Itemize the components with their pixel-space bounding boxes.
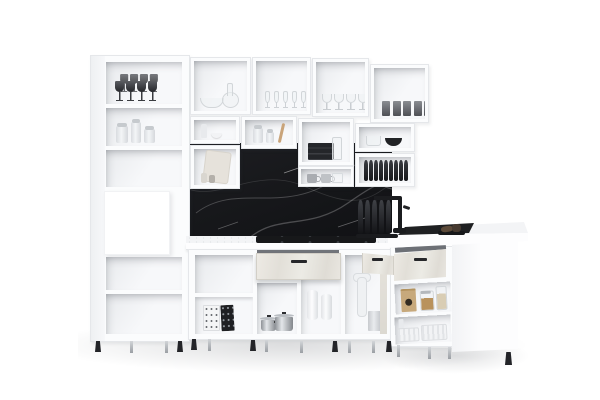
black-plate [399,160,403,181]
black-napkin-stack [308,143,334,160]
cubby-interior [194,120,236,140]
glass-cup-outline [332,173,343,183]
cubby-interior [194,61,247,111]
white-bowl [211,133,222,138]
flute-glass [264,91,270,108]
glass-cup [366,136,381,146]
cabinet-leg [348,341,351,353]
paper-towel-roll [321,294,332,320]
jar-lid [421,291,431,295]
storage-basket [421,324,448,341]
cubby-flutes [252,57,311,115]
black-plate [394,160,398,181]
storage-jar [116,126,128,143]
patterned-box-black [220,305,234,332]
flute-glass [282,91,288,108]
cubby-spice-jars [241,116,297,149]
cubby-cup-bowl [355,123,415,152]
tall-cubby-empty-1 [106,150,182,187]
open-drawer-cooktop [256,253,341,280]
cabinet-leg [397,345,400,357]
faucet-lever [403,205,411,210]
wine-glass-dark [137,81,146,101]
gray-mug [321,174,331,183]
tumbler [393,101,401,116]
tall-cubby-empty-2 [106,257,182,290]
cubby-small-bottle [190,116,240,144]
cubby-bowl-decanter [190,57,251,115]
tall-cubby-empty-3 [106,294,182,334]
cubby-plate-rack [355,153,415,187]
tumbler [414,101,422,116]
cubby-interior [374,68,425,119]
cubby-interior [316,62,365,113]
cubby-mugs [298,166,354,187]
tall-cabinet-side-face [91,56,105,341]
smoked-stemware-front [115,81,157,101]
cubby-interior [359,127,411,148]
patterned-box-white [203,305,220,331]
wine-glass [358,94,365,110]
base-cubby-boxes [195,255,253,334]
drawer-handle [291,260,307,263]
end-panel-right [452,238,518,354]
cubby-black-stack [298,118,354,166]
cubby-interior [245,120,293,145]
wooden-spoon [278,123,285,143]
base-cubby-pots [257,283,297,334]
kitchen-product-render [0,0,600,400]
drying-plate [372,200,377,234]
drain-pipe [357,277,367,317]
spice-jar [266,132,274,143]
storage-jar [131,122,141,143]
spice-jar [253,128,263,143]
wine-glass [346,94,356,110]
gray-mug [307,174,317,183]
black-plate [389,160,393,181]
pasta-jar [435,286,447,311]
wine-glasses [322,94,365,110]
wine-glass [334,94,344,110]
tumbler [403,101,411,116]
black-plate [364,160,368,181]
cubby-interior [194,149,236,185]
tall-cubby-stemware [106,62,182,104]
tumbler [382,101,390,116]
cabinet-leg [130,341,133,353]
black-bowl [385,138,402,146]
flute-glass [291,91,297,108]
drawer-handle [414,258,427,261]
black-plate [384,160,388,181]
black-plate [374,160,378,181]
black-plate-rack [364,160,408,181]
flute-glass [300,91,306,108]
cubby-tumblers [370,64,429,123]
black-plate [404,160,408,181]
drying-plate [379,200,384,234]
cubby-interior [302,122,350,162]
dish-brush-set [438,221,466,235]
glass-bowl [200,98,224,108]
glass-bottle [332,137,342,160]
brush [452,224,461,232]
cubby-wine-glasses [312,58,369,117]
drying-plate-rack [356,196,400,238]
tumbler [424,101,425,116]
jar-set [116,122,155,143]
shaker [209,175,215,183]
cabinet-leg [208,339,211,351]
drying-plates [358,200,391,234]
wine-glass-dark [115,81,124,101]
drying-plate [365,200,370,234]
open-drawer-right [394,249,446,281]
wine-glass [322,94,332,110]
oven-niche [104,191,170,255]
right-shelf-lower [394,315,451,345]
cabinet-leg [265,340,268,352]
drawer-handle [372,258,383,261]
smoked-tumblers [382,101,425,116]
drying-plate [358,200,363,234]
champagne-flutes [264,91,306,108]
black-plate [379,160,383,181]
storage-jar [144,129,155,143]
cubby-interior [359,157,411,183]
tall-cubby-jars [106,108,182,146]
cubby-interior [301,169,351,184]
black-plate [369,160,373,181]
cabinet-leg [372,341,375,353]
decanter-neck [227,83,233,96]
steel-pot-large [275,317,293,331]
paper-towel-roll [307,290,318,320]
drying-plate [386,200,391,234]
cabinet-leg [448,347,451,359]
rack-base [356,234,398,238]
wine-glass-dark [126,81,135,101]
cubby-interior [256,61,307,111]
cabinet-leg [428,347,431,359]
right-shelf-upper [394,282,451,315]
flute-glass [273,91,279,108]
tall-cabinet [90,55,190,342]
wine-glass-dark [148,81,157,101]
cabinet-leg [300,341,303,353]
shaker [201,173,207,183]
shelf [195,293,253,297]
cabinet-leg [165,341,168,353]
cubby-cutting-board [190,145,240,189]
storage-basket [397,327,420,342]
small-bottle [201,124,207,138]
